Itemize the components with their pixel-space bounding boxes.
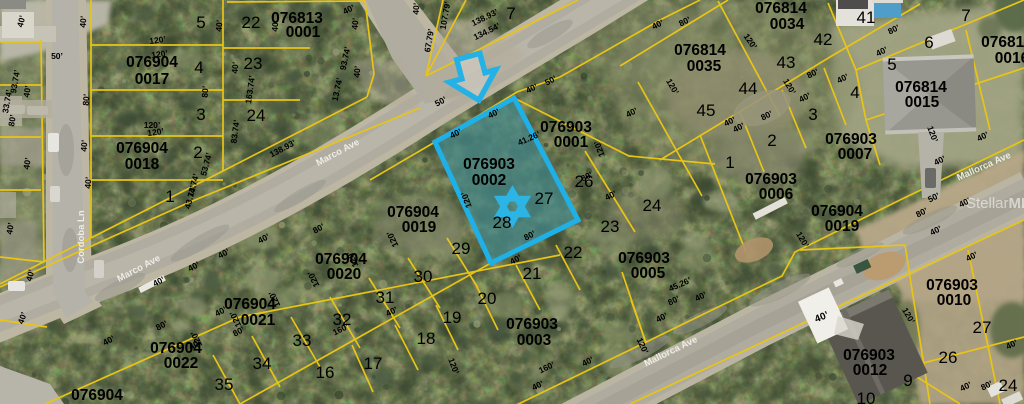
svg-text:40’: 40’: [350, 17, 361, 30]
svg-text:0001: 0001: [286, 24, 321, 41]
svg-text:41: 41: [857, 8, 876, 27]
svg-text:120’: 120’: [144, 120, 161, 130]
svg-text:0020: 0020: [327, 266, 361, 283]
svg-text:0015: 0015: [905, 94, 940, 111]
svg-text:45: 45: [697, 101, 716, 120]
svg-text:44: 44: [739, 79, 758, 98]
svg-text:40’: 40’: [21, 85, 33, 98]
svg-text:23: 23: [601, 217, 620, 236]
svg-text:40’: 40’: [21, 157, 33, 170]
svg-text:40’: 40’: [79, 139, 90, 152]
svg-text:20: 20: [478, 289, 497, 308]
svg-text:40’: 40’: [78, 15, 89, 28]
svg-text:28: 28: [493, 213, 512, 232]
svg-text:43: 43: [777, 53, 796, 72]
svg-text:42: 42: [814, 30, 833, 49]
svg-text:30: 30: [414, 267, 433, 286]
svg-text:40’: 40’: [4, 222, 16, 235]
svg-text:0010: 0010: [937, 292, 971, 309]
svg-text:1: 1: [725, 153, 734, 172]
svg-text:4: 4: [850, 83, 859, 102]
svg-text:0018: 0018: [125, 156, 160, 173]
svg-text:24: 24: [643, 196, 662, 215]
svg-text:35: 35: [215, 375, 234, 394]
svg-text:3: 3: [808, 105, 817, 124]
svg-text:7: 7: [506, 4, 515, 23]
svg-text:40’: 40’: [214, 19, 225, 32]
svg-text:22: 22: [242, 13, 261, 32]
svg-text:26: 26: [939, 348, 958, 367]
svg-text:1: 1: [165, 187, 174, 206]
svg-text:27: 27: [973, 318, 992, 337]
svg-text:4: 4: [194, 58, 203, 77]
svg-text:0005: 0005: [631, 265, 666, 282]
svg-text:0003: 0003: [517, 332, 552, 349]
svg-text:2: 2: [767, 131, 776, 150]
svg-text:076903: 076903: [463, 156, 515, 173]
svg-text:40’: 40’: [230, 61, 241, 74]
svg-text:40’: 40’: [83, 176, 94, 189]
svg-text:3: 3: [196, 105, 205, 124]
svg-text:80’: 80’: [81, 93, 92, 106]
svg-text:50’: 50’: [51, 51, 63, 61]
svg-text:40’: 40’: [270, 19, 281, 32]
svg-text:17: 17: [364, 354, 383, 373]
svg-text:0035: 0035: [687, 58, 722, 75]
svg-text:24: 24: [247, 106, 266, 125]
svg-text:22: 22: [564, 243, 583, 262]
svg-text:0007: 0007: [838, 146, 872, 163]
svg-text:33: 33: [293, 331, 312, 350]
svg-text:19: 19: [443, 308, 462, 327]
svg-text:80’: 80’: [200, 85, 211, 98]
svg-text:StellarMLS: StellarMLS: [966, 195, 1024, 212]
svg-text:076904: 076904: [71, 387, 123, 404]
svg-text:80’: 80’: [6, 114, 18, 127]
svg-text:0019: 0019: [825, 218, 860, 235]
svg-text:076814: 076814: [674, 42, 726, 59]
svg-text:076814: 076814: [755, 0, 807, 17]
svg-text:16: 16: [316, 363, 335, 382]
svg-text:0001: 0001: [554, 134, 589, 151]
svg-text:27: 27: [535, 189, 554, 208]
svg-text:076904: 076904: [116, 140, 168, 157]
svg-text:5: 5: [887, 55, 896, 74]
svg-text:40’: 40’: [411, 2, 422, 15]
svg-text:9: 9: [903, 371, 912, 390]
svg-text:6: 6: [924, 33, 933, 52]
svg-text:0016: 0016: [995, 50, 1024, 67]
svg-text:34: 34: [253, 354, 272, 373]
svg-text:7: 7: [961, 6, 970, 25]
svg-text:0006: 0006: [759, 186, 794, 203]
svg-text:23: 23: [244, 54, 263, 73]
svg-text:24: 24: [999, 376, 1018, 395]
svg-text:18: 18: [417, 329, 436, 348]
svg-text:076814: 076814: [981, 34, 1024, 51]
svg-text:0002: 0002: [472, 172, 506, 189]
svg-text:40’: 40’: [352, 65, 363, 78]
svg-text:076903: 076903: [506, 316, 558, 333]
svg-text:0019: 0019: [402, 219, 437, 236]
svg-text:0012: 0012: [853, 362, 887, 379]
svg-text:10: 10: [857, 389, 876, 404]
svg-text:21: 21: [523, 264, 542, 283]
svg-text:29: 29: [452, 239, 471, 258]
svg-text:31: 31: [376, 288, 395, 307]
svg-text:0021: 0021: [241, 312, 276, 329]
svg-text:5: 5: [196, 13, 205, 32]
svg-text:0017: 0017: [135, 71, 169, 88]
svg-text:0034: 0034: [770, 16, 805, 33]
svg-text:0022: 0022: [164, 355, 198, 372]
svg-text:Cordoba Ln: Cordoba Ln: [76, 210, 87, 263]
